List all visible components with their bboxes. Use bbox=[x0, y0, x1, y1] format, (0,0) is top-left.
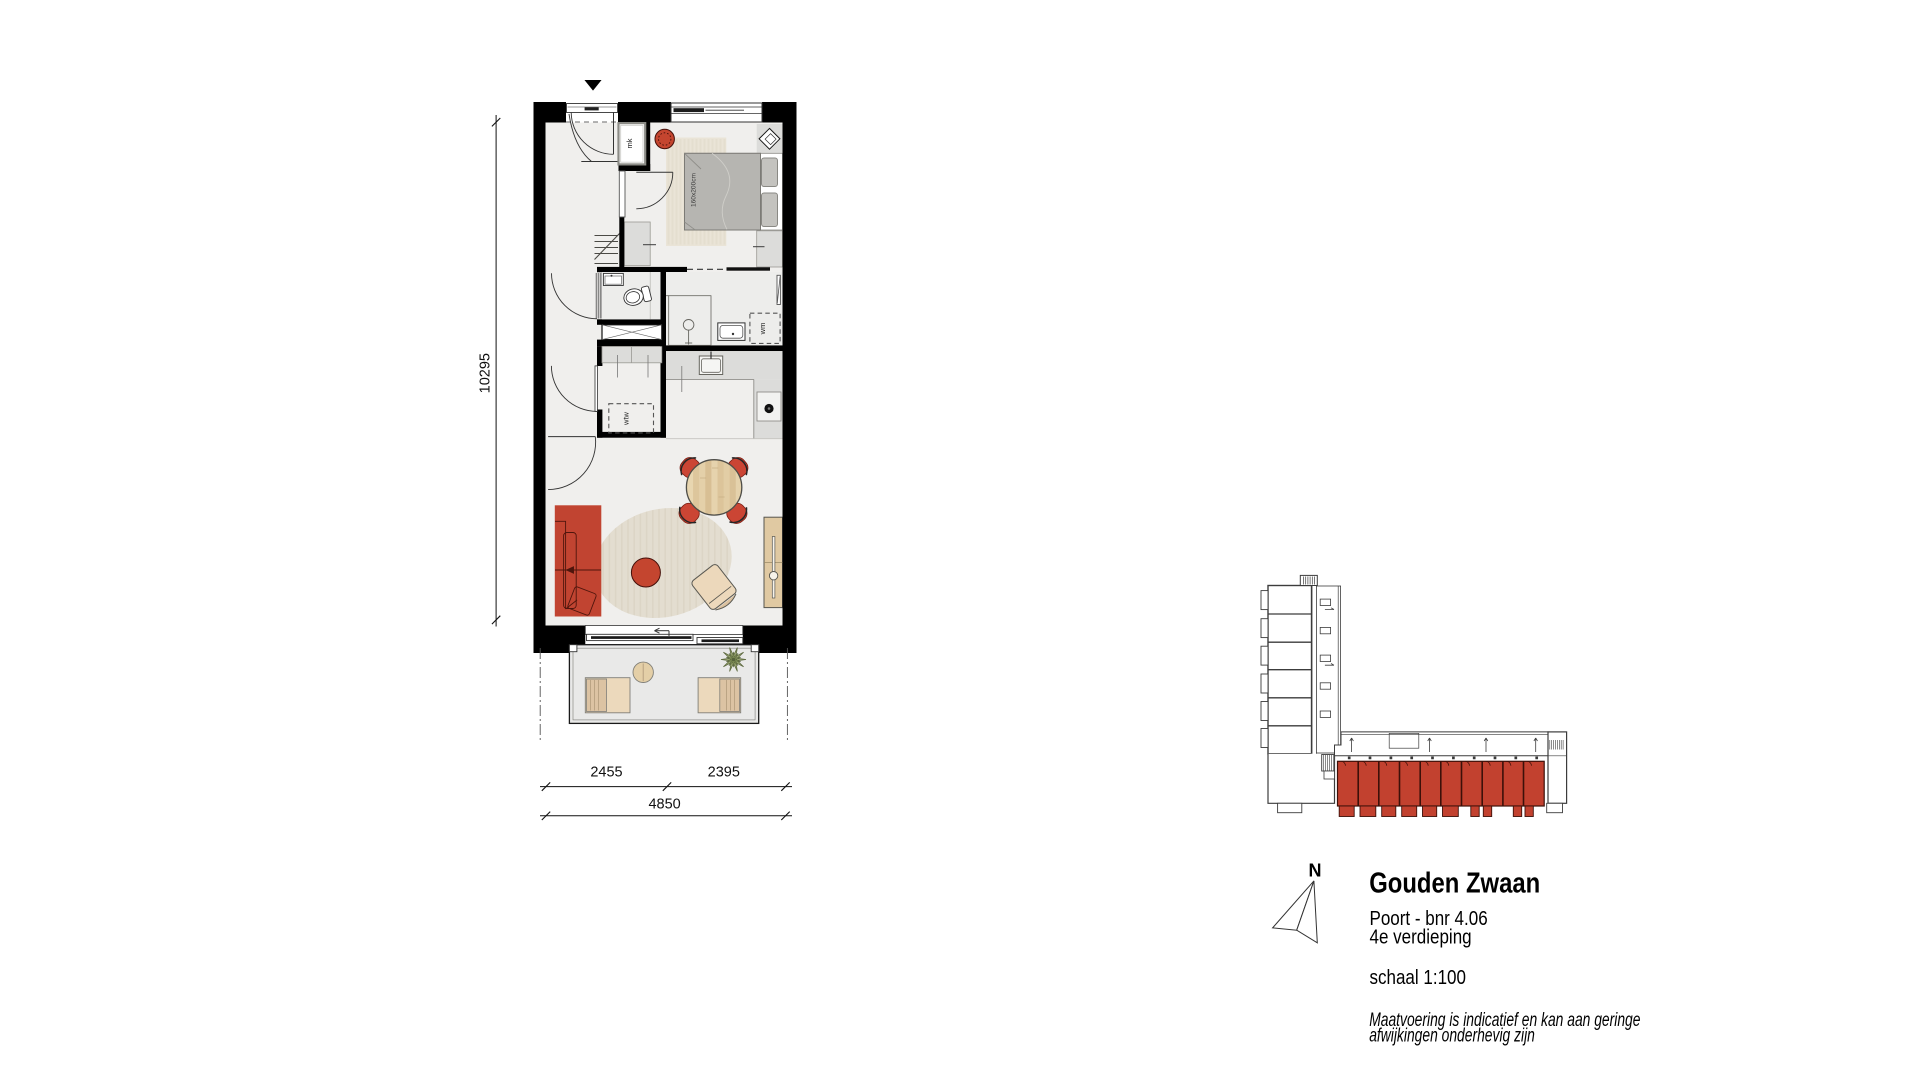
svg-text:4e verdieping: 4e verdieping bbox=[1370, 925, 1472, 948]
svg-text:wm: wm bbox=[758, 323, 767, 336]
svg-text:160x200cm: 160x200cm bbox=[691, 172, 698, 207]
svg-text:2455: 2455 bbox=[590, 765, 622, 781]
svg-text:N: N bbox=[1309, 860, 1322, 880]
svg-text:Gouden Zwaan: Gouden Zwaan bbox=[1369, 866, 1540, 899]
svg-text:wtw: wtw bbox=[622, 411, 631, 426]
svg-text:afwijkingen onderhevig zijn: afwijkingen onderhevig zijn bbox=[1369, 1024, 1535, 1046]
svg-text:2395: 2395 bbox=[708, 765, 740, 781]
svg-text:schaal 1:100: schaal 1:100 bbox=[1370, 966, 1466, 989]
svg-text:mk: mk bbox=[625, 138, 634, 148]
svg-text:10295: 10295 bbox=[478, 353, 494, 393]
svg-text:4850: 4850 bbox=[648, 796, 680, 812]
